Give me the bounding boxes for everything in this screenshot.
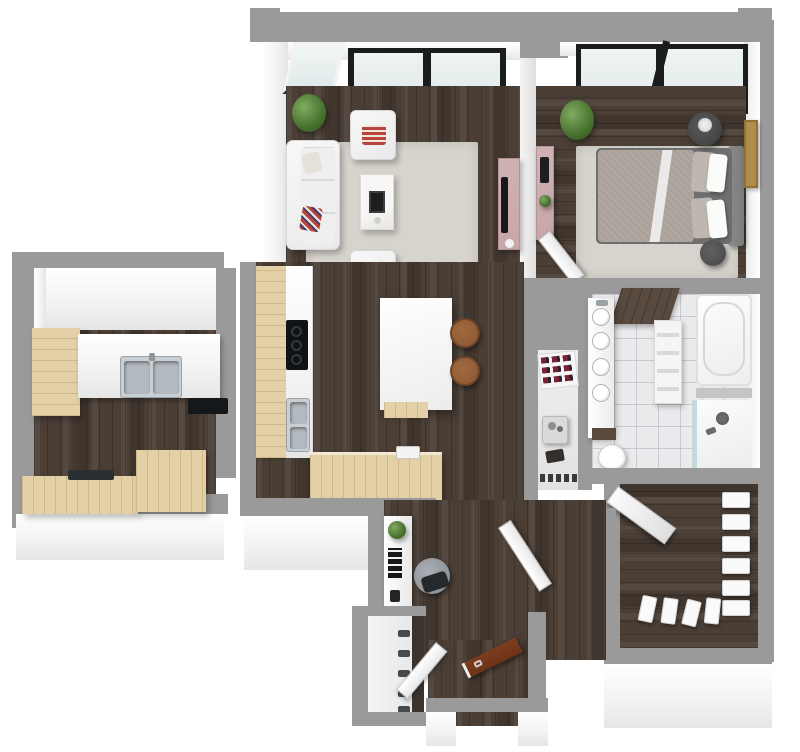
book-stack xyxy=(369,191,385,213)
sofa-pillow-light xyxy=(301,151,323,174)
sofa xyxy=(286,140,340,250)
annex-wall-top xyxy=(12,252,224,268)
shower-glass-panel xyxy=(692,400,697,468)
table-decor xyxy=(374,217,381,224)
door-handle xyxy=(473,659,483,668)
bathroom-wood-shelf xyxy=(592,428,616,440)
vessel-sink-2 xyxy=(592,332,610,350)
bedroom-console xyxy=(536,146,554,240)
bathroom-closet-wall xyxy=(590,468,772,484)
storage-wall-left xyxy=(524,350,538,502)
entry-outer-face-left xyxy=(426,712,456,746)
pillow-white-bottom xyxy=(706,199,728,239)
bedroom-wall-top xyxy=(560,12,760,42)
nightstand xyxy=(688,112,722,146)
bathtub-basin xyxy=(703,302,745,376)
kitchen-outer-face xyxy=(244,516,372,570)
desk-books xyxy=(388,548,402,578)
flower-vase xyxy=(698,118,712,132)
console-plant xyxy=(539,195,551,207)
living-wall-top xyxy=(262,12,540,42)
shoes xyxy=(398,650,410,657)
annex-cooktop xyxy=(188,398,228,414)
bathroom-wood-counter xyxy=(610,288,680,324)
bar-chair-1 xyxy=(450,318,480,348)
vessel-sink-3 xyxy=(592,358,610,376)
shower-valve xyxy=(705,426,716,435)
vessel-sink-4 xyxy=(592,384,610,402)
entry-threshold xyxy=(456,712,518,726)
annex-base-cabinet-right xyxy=(136,450,206,512)
annex-base-cabinet-left xyxy=(22,476,138,514)
hanging-shirt xyxy=(722,558,750,574)
kitchen-island xyxy=(380,298,452,410)
kitchen-cooktop xyxy=(286,320,308,370)
bedroom-plant xyxy=(560,100,594,140)
hanging-shirt-bottom xyxy=(704,597,722,624)
entry-wall-right xyxy=(528,612,546,702)
shower xyxy=(696,400,752,468)
kitchen-bottom-counter xyxy=(310,452,442,503)
annex-tall-cabinet xyxy=(32,328,80,416)
annex-dark-tray xyxy=(68,470,114,480)
prep-sink xyxy=(396,446,420,459)
sofa-pillow-pattern xyxy=(299,205,323,232)
utility-cart xyxy=(542,416,568,444)
desk xyxy=(384,516,412,614)
annex-faucet xyxy=(149,353,155,361)
living-wall-left-face xyxy=(262,42,288,268)
closet-wall-bottom xyxy=(604,648,772,664)
shoecloset-wall-left xyxy=(352,606,368,718)
shoe-row xyxy=(540,474,578,482)
toilet xyxy=(598,444,626,470)
vessel-sink-1 xyxy=(592,308,610,326)
hanging-shirt xyxy=(722,514,750,530)
bathtub xyxy=(696,294,752,386)
floor-plan-scene xyxy=(0,0,800,752)
hanging-shirt xyxy=(722,492,750,508)
console-speaker xyxy=(540,157,549,183)
annex-outer-face xyxy=(16,514,224,560)
tv xyxy=(501,177,508,233)
entry-outer-face-right xyxy=(518,712,548,746)
shoe-rack xyxy=(537,350,579,390)
entry-wall-bottom xyxy=(426,698,548,712)
kitchen-sink xyxy=(286,398,310,452)
living-plant xyxy=(292,94,326,132)
vanity-faucet xyxy=(596,300,608,306)
bed xyxy=(596,144,746,248)
office-chair xyxy=(414,558,450,594)
leaning-artwork xyxy=(744,120,758,188)
vase xyxy=(505,239,514,248)
closet-outer-face xyxy=(604,664,772,728)
annex-wall-face-top xyxy=(34,268,216,330)
shoecloset-wall-top xyxy=(366,606,426,616)
island-wood-base xyxy=(384,402,428,418)
annex-double-sink xyxy=(120,356,182,398)
duvet xyxy=(598,150,694,242)
shoes xyxy=(398,630,410,637)
ottoman xyxy=(700,240,726,266)
hanging-shirt xyxy=(722,600,750,616)
kitchen-counter-wood-face xyxy=(256,266,286,458)
shower-head xyxy=(716,412,729,425)
bar-chair-2 xyxy=(450,356,480,386)
tv-console xyxy=(498,158,520,250)
wall-outer-right xyxy=(758,20,774,662)
towel-ladder xyxy=(654,320,682,404)
desk-plant xyxy=(388,521,406,539)
office-wall-left xyxy=(368,505,384,617)
desk-speaker xyxy=(390,590,400,602)
hanging-shirt xyxy=(722,536,750,552)
tub-shower-divider xyxy=(696,388,752,398)
hanging-shirt xyxy=(722,580,750,596)
armchair-top xyxy=(350,110,396,160)
coffee-table xyxy=(360,174,394,230)
bedroom-bathroom-wall xyxy=(586,278,772,294)
armchair-pillow xyxy=(362,125,386,145)
kitchen-wall-left xyxy=(240,262,256,514)
